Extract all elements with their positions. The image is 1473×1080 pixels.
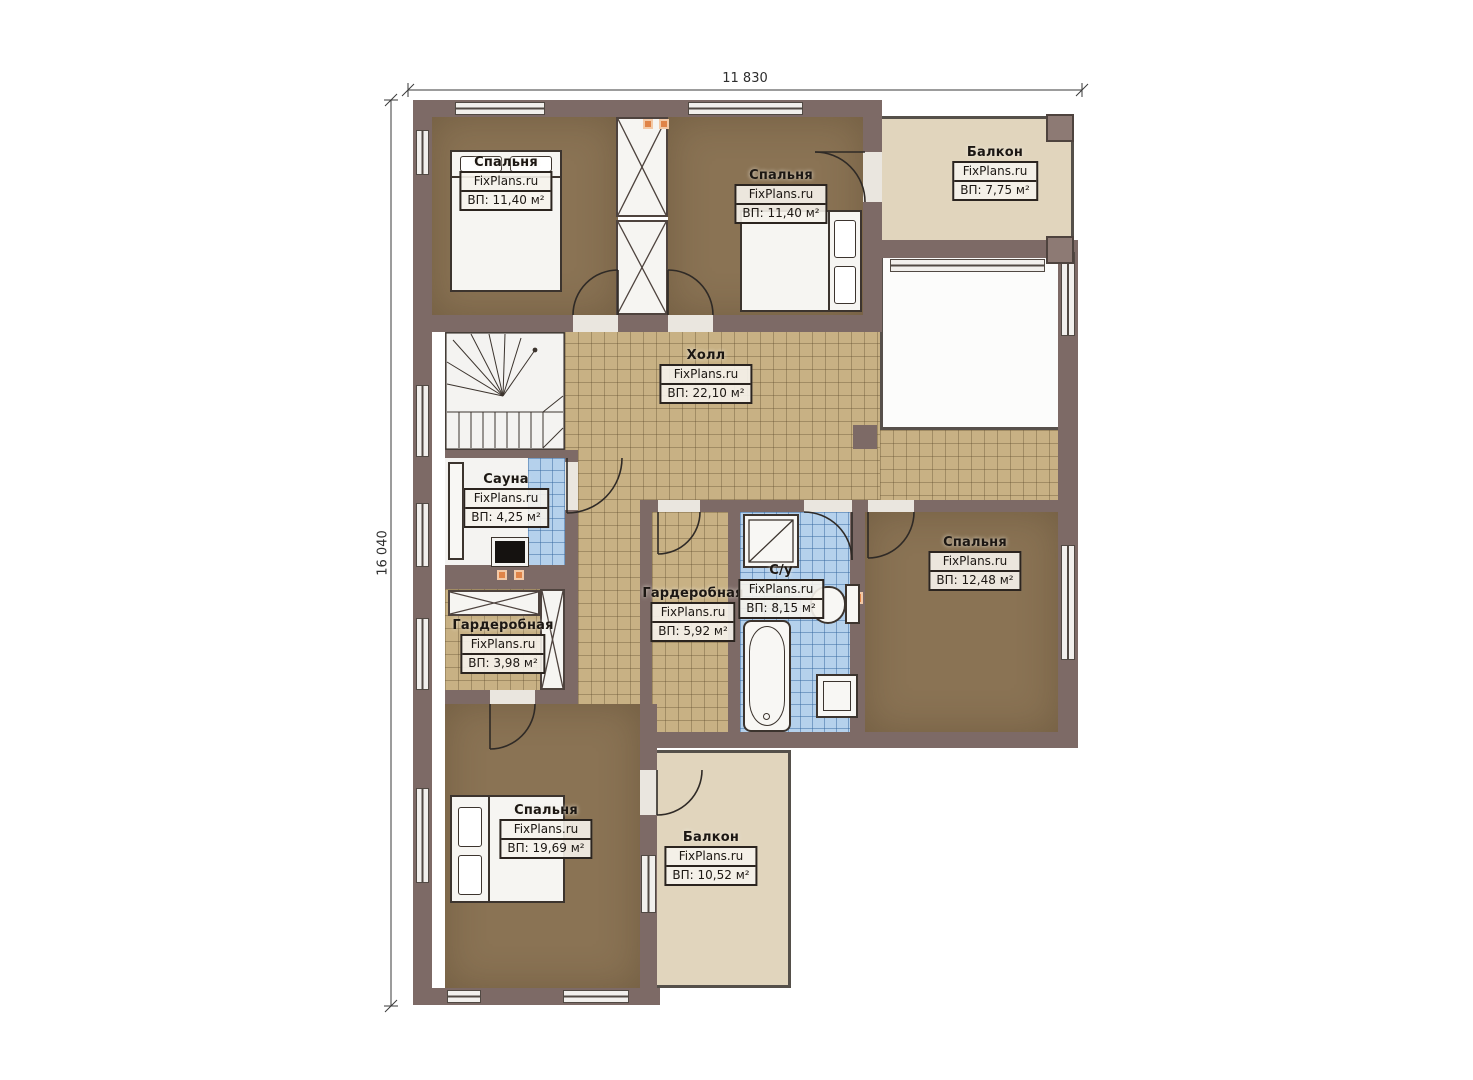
room-label-bathroom: С/у FixPlans.ruВП: 8,15 м² bbox=[738, 563, 824, 619]
wall-bedroom-balcony bbox=[863, 100, 882, 332]
door-opening bbox=[640, 770, 657, 815]
room-area: ВП: 5,92 м² bbox=[652, 621, 734, 640]
room-area: ВП: 22,10 м² bbox=[661, 383, 750, 402]
watermark: FixPlans.ru bbox=[465, 490, 547, 507]
room-label-sauna: Сауна FixPlans.ruВП: 4,25 м² bbox=[463, 472, 549, 528]
sauna-bench bbox=[448, 462, 464, 560]
room-label-balcony-bottom: Балкон FixPlans.ruВП: 10,52 м² bbox=[664, 830, 757, 886]
vent-marker bbox=[643, 119, 653, 129]
room-area: ВП: 12,48 м² bbox=[930, 570, 1019, 589]
wall-bedroom-balcony-bottom bbox=[640, 704, 657, 988]
door-bedroom-top-left bbox=[573, 270, 618, 315]
room-area: ВП: 11,40 м² bbox=[461, 190, 550, 209]
room-label-bedroom-bottom-left: Спальня FixPlans.ruВП: 19,69 м² bbox=[499, 803, 592, 859]
toilet-tank bbox=[845, 584, 860, 624]
watermark: FixPlans.ru bbox=[461, 173, 550, 190]
door-wardrobe-middle bbox=[658, 512, 700, 554]
door-sauna-shower bbox=[567, 458, 622, 513]
bed bbox=[740, 210, 862, 312]
sauna-stove bbox=[492, 538, 528, 566]
room-label-bedroom-top-middle: Спальня FixPlans.ruВП: 11,40 м² bbox=[734, 168, 827, 224]
room-label-balcony-top-right: Балкон FixPlans.ruВП: 7,75 м² bbox=[952, 145, 1038, 201]
window-voidroom bbox=[890, 259, 1045, 272]
door-opening bbox=[868, 500, 914, 512]
wall-sauna-top bbox=[445, 450, 578, 458]
door-bedroom-top-middle bbox=[668, 270, 713, 315]
vent-marker bbox=[514, 570, 524, 580]
room-area: ВП: 3,98 м² bbox=[462, 653, 544, 672]
window bbox=[1061, 252, 1075, 336]
room-label-bedroom-top-left: Спальня FixPlans.ruВП: 11,40 м² bbox=[459, 155, 552, 211]
watermark: FixPlans.ru bbox=[501, 821, 590, 838]
pillar-hall bbox=[853, 425, 877, 449]
watermark: FixPlans.ru bbox=[736, 186, 825, 203]
door-opening bbox=[668, 315, 713, 332]
door-opening bbox=[490, 690, 535, 704]
duct-shaft bbox=[616, 220, 668, 315]
room-area: ВП: 7,75 м² bbox=[954, 180, 1036, 199]
sink bbox=[816, 674, 858, 718]
window bbox=[455, 102, 545, 115]
window bbox=[416, 503, 429, 567]
bathtub bbox=[743, 620, 791, 732]
watermark: FixPlans.ru bbox=[661, 366, 750, 383]
door-opening bbox=[658, 500, 700, 512]
watermark: FixPlans.ru bbox=[666, 848, 755, 865]
balcony-post bbox=[1046, 236, 1074, 264]
door-wardrobe-left bbox=[490, 704, 535, 749]
dimension-height: 16 040 bbox=[376, 530, 391, 576]
window bbox=[447, 990, 481, 1003]
closet bbox=[448, 590, 540, 616]
vent-marker bbox=[497, 570, 507, 580]
balcony-post bbox=[1046, 114, 1074, 142]
door-balcony-bottom bbox=[657, 770, 702, 815]
floor-plan-canvas: 11 830 16 040 Спальня FixPlans.ruВП: 11,… bbox=[0, 0, 1473, 1080]
duct-shaft bbox=[616, 117, 668, 217]
window bbox=[563, 990, 629, 1003]
room-area: ВП: 19,69 м² bbox=[501, 838, 590, 857]
door-bathroom bbox=[804, 512, 852, 560]
door-opening bbox=[804, 500, 852, 512]
watermark: FixPlans.ru bbox=[462, 636, 544, 653]
wall-sauna-bottom bbox=[445, 565, 578, 589]
watermark: FixPlans.ru bbox=[740, 581, 822, 598]
room-area: ВП: 11,40 м² bbox=[736, 203, 825, 222]
room-area: ВП: 10,52 м² bbox=[666, 865, 755, 884]
door-opening bbox=[573, 315, 618, 332]
room-area: ВП: 4,25 м² bbox=[465, 507, 547, 526]
window bbox=[416, 618, 429, 690]
room-label-wardrobe-middle: Гардеробная FixPlans.ruВП: 5,92 м² bbox=[642, 586, 743, 642]
watermark: FixPlans.ru bbox=[954, 163, 1036, 180]
door-bedroom-right bbox=[868, 512, 914, 558]
room-label-wardrobe-left: Гардеробная FixPlans.ruВП: 3,98 м² bbox=[452, 618, 553, 674]
room-label-hall: Холл FixPlans.ruВП: 22,10 м² bbox=[659, 348, 752, 404]
wall-under-top-bedrooms bbox=[432, 315, 863, 332]
window bbox=[688, 102, 803, 115]
room-area: ВП: 8,15 м² bbox=[740, 598, 822, 617]
wall-hall-south bbox=[652, 500, 1062, 512]
watermark: FixPlans.ru bbox=[652, 604, 734, 621]
dimension-width: 11 830 bbox=[722, 71, 768, 86]
shower bbox=[743, 514, 799, 568]
window bbox=[416, 385, 429, 457]
room-label-bedroom-right: Спальня FixPlans.ruВП: 12,48 м² bbox=[928, 535, 1021, 591]
watermark: FixPlans.ru bbox=[930, 553, 1019, 570]
window bbox=[1061, 545, 1075, 660]
window bbox=[416, 130, 429, 175]
door-opening bbox=[863, 152, 882, 202]
window-balcony bbox=[641, 855, 656, 913]
vent-marker bbox=[659, 119, 669, 129]
wall-wing-bottom bbox=[640, 732, 1060, 748]
staircase bbox=[445, 332, 565, 450]
window bbox=[416, 788, 429, 883]
